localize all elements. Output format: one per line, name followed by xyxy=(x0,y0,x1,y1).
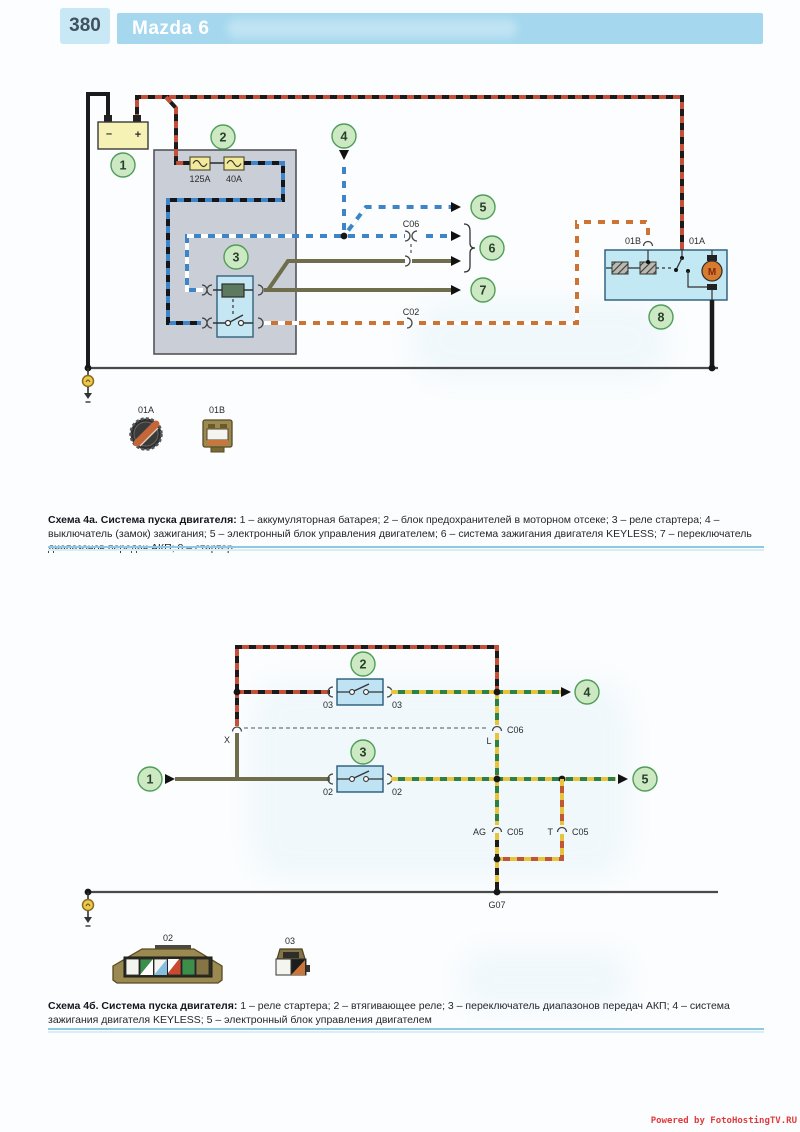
conn02-label: 02 xyxy=(163,933,173,943)
relay2-pin-right: 03 xyxy=(392,700,402,710)
caption-schema-4a: Схема 4а. Система пуска двигателя: 1 – а… xyxy=(48,514,764,556)
manual-page: 380 Mazda 6 xyxy=(0,0,800,1132)
legend-connector-01a: 01A xyxy=(131,405,162,450)
connector-t-c05: T C05 xyxy=(548,827,589,837)
ground-bus-2: G07 xyxy=(85,889,718,910)
connector-c06: C06 xyxy=(403,219,420,266)
battery: – + xyxy=(98,115,148,149)
battery-plus-label: + xyxy=(135,129,141,141)
c06-label: C06 xyxy=(403,219,420,229)
starter-01a-label: 01A xyxy=(689,236,705,246)
d2-callout-1: 1 xyxy=(147,773,154,787)
fuse-125a: 125A xyxy=(189,157,210,184)
connector-c06-d2: C06 L xyxy=(486,725,523,746)
callout-1: 1 xyxy=(120,159,127,173)
relay2-pin-left: 03 xyxy=(323,700,333,710)
g07-label: G07 xyxy=(488,900,505,910)
starter-assembly: 01B 01A M xyxy=(605,236,727,300)
section-divider-1 xyxy=(48,546,764,548)
relay-box-3: 02 02 xyxy=(323,766,402,797)
c05-right-label: C05 xyxy=(572,827,589,837)
section-divider-2 xyxy=(48,1028,764,1030)
relay3-pin-right: 02 xyxy=(392,787,402,797)
c02-label: C02 xyxy=(403,307,420,317)
t-label: T xyxy=(548,827,554,837)
callout-3: 3 xyxy=(233,251,240,265)
connector-photo-03: 03 xyxy=(276,936,310,975)
relay-box-2: 03 03 xyxy=(323,679,402,710)
d2-callout-3: 3 xyxy=(360,746,367,760)
c06-label-d2: C06 xyxy=(507,725,524,735)
d2-callout-5: 5 xyxy=(642,773,649,787)
fuse-125a-label: 125A xyxy=(189,174,210,184)
callout-2: 2 xyxy=(220,131,227,145)
connector-photo-02: 02 xyxy=(113,933,222,983)
hosting-credit: Powered by FotoHostingTV.RU xyxy=(651,1116,797,1126)
callout-4: 4 xyxy=(341,130,348,144)
wiring-diagrams-canvas: – + 125A 40A xyxy=(0,0,800,1132)
d2-callout-4: 4 xyxy=(584,686,591,700)
battery-minus-label: – xyxy=(106,128,112,140)
conn03-label: 03 xyxy=(285,936,295,946)
callout-8: 8 xyxy=(658,311,665,325)
x-label: X xyxy=(224,735,230,745)
ground-symbol-1 xyxy=(83,368,94,402)
d2-callout-2: 2 xyxy=(360,658,367,672)
c05-left-label: C05 xyxy=(507,827,524,837)
relay3-pin-left: 02 xyxy=(323,787,333,797)
legend-01b-label: 01B xyxy=(209,405,225,415)
caption-4a-title: Схема 4а. Система пуска двигателя: xyxy=(48,514,237,526)
caption-schema-4b: Схема 4б. Система пуска двигателя: 1 – р… xyxy=(48,1000,764,1028)
caption-4b-title: Схема 4б. Система пуска двигателя: xyxy=(48,1000,237,1012)
motor-label: M xyxy=(708,267,716,278)
callouts-diagram2: 1 2 3 4 5 xyxy=(138,652,657,791)
callout-5: 5 xyxy=(480,201,487,215)
diagram1: – + 125A 40A xyxy=(83,94,728,452)
ground-symbol-2 xyxy=(83,892,94,926)
legend-01a-label: 01A xyxy=(138,405,154,415)
ag-label: AG xyxy=(473,827,486,837)
diagram2: X 03 03 02 xyxy=(83,647,719,983)
callout-7: 7 xyxy=(480,284,487,298)
fuse-40a-label: 40A xyxy=(226,174,242,184)
l-label: L xyxy=(486,736,491,746)
callout-6: 6 xyxy=(489,242,496,256)
wire-green-yellow xyxy=(234,687,628,825)
starter-01b-label: 01B xyxy=(625,236,641,246)
legend-connector-01b: 01B xyxy=(203,405,232,452)
wire-red-yellow-branch xyxy=(494,779,562,862)
wire-input xyxy=(165,733,330,784)
